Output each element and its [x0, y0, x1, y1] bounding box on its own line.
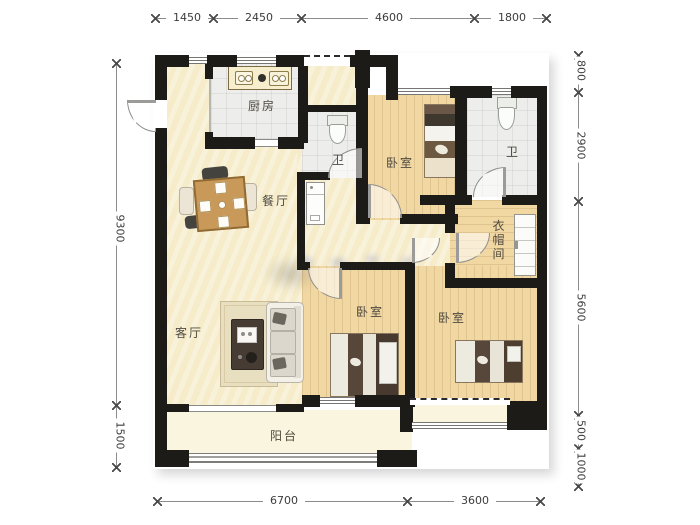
- wall: [445, 278, 547, 288]
- room-label-cloakroom: 衣帽间: [491, 219, 506, 261]
- kitchen-glass-partition: [209, 79, 211, 132]
- window: [492, 88, 511, 95]
- dim-tick: [112, 59, 121, 68]
- dim-label: 2450: [238, 11, 280, 24]
- refrigerator: [306, 182, 325, 225]
- dim-tick: [151, 14, 160, 23]
- wall: [455, 86, 467, 198]
- room-label-living: 客厅: [170, 324, 208, 341]
- dining-chair: [179, 187, 194, 215]
- dim-tick: [574, 197, 583, 206]
- sliding-door: [189, 405, 276, 412]
- wall: [377, 450, 417, 467]
- dim-tick: [209, 14, 218, 23]
- wall: [205, 63, 213, 79]
- dashed-opening: [410, 398, 510, 405]
- wardrobe: [514, 214, 536, 276]
- wall: [405, 262, 415, 407]
- wall: [386, 55, 398, 100]
- sliding-door: [255, 139, 278, 147]
- dim-label: 800: [575, 57, 588, 85]
- burner-icon: [258, 74, 266, 82]
- dim-tick: [403, 497, 412, 506]
- kitchen-counter: [228, 66, 292, 90]
- toilet-icon: [497, 97, 515, 129]
- room-label-bedroom-right: 卧室: [434, 309, 470, 326]
- bed: [424, 104, 459, 178]
- wall: [297, 172, 305, 270]
- stove-icon: [269, 71, 289, 86]
- dim-tick: [297, 14, 306, 23]
- room-label-bath-right: 卫: [504, 143, 520, 160]
- dim-label: 500: [575, 417, 588, 445]
- window: [320, 397, 355, 404]
- wall: [155, 55, 189, 67]
- dim-tick: [153, 497, 162, 506]
- dim-tick: [112, 401, 121, 410]
- wall: [298, 63, 308, 143]
- dim-label: 4600: [368, 11, 410, 24]
- dim-label: 6700: [263, 494, 305, 507]
- wall: [155, 450, 189, 467]
- dining-table: [193, 176, 249, 232]
- toilet-icon: [327, 115, 346, 143]
- wall: [167, 404, 189, 412]
- wall: [155, 128, 167, 467]
- dim-label: 9300: [114, 212, 127, 246]
- wall: [298, 105, 360, 112]
- entry-door-arc: [127, 100, 156, 132]
- room-label-bedroom-center: 卧室: [352, 303, 388, 320]
- wall: [355, 50, 370, 88]
- wall: [420, 195, 472, 205]
- dim-label: 5600: [575, 291, 588, 325]
- bay-window: [412, 422, 507, 429]
- dim-label: 1500: [114, 419, 127, 453]
- wall: [502, 195, 547, 205]
- sofa: [266, 302, 304, 383]
- sink-icon: [235, 71, 253, 85]
- dim-label: 1800: [491, 11, 533, 24]
- room-label-bath-mid: 卫: [330, 151, 346, 168]
- dim-tick: [470, 14, 479, 23]
- dim-tick: [536, 497, 545, 506]
- dim-label: 3600: [454, 494, 496, 507]
- room-label-bedroom-top: 卧室: [382, 154, 418, 171]
- bed: [330, 333, 399, 397]
- window: [237, 57, 276, 64]
- dim-label: 1450: [166, 11, 208, 24]
- room-label-dining: 餐厅: [256, 192, 296, 209]
- floor-plan: 厨房 餐厅 卫 卧室 卫 衣帽间 客厅 卧室 卧室 阳台 1450 2450 4…: [0, 0, 700, 525]
- dim-label: 2900: [575, 129, 588, 163]
- balcony-window: [189, 453, 377, 463]
- window: [398, 88, 450, 95]
- dashed-opening: [304, 55, 350, 66]
- dim-tick: [574, 88, 583, 97]
- bed: [455, 340, 523, 383]
- wall: [302, 395, 320, 407]
- dim-tick: [542, 14, 551, 23]
- wall: [340, 262, 412, 270]
- dim-label: 1000: [575, 450, 588, 484]
- wall: [205, 137, 255, 149]
- window: [189, 57, 207, 64]
- coffee-table: [231, 319, 264, 370]
- wall: [507, 401, 547, 430]
- dim-tick: [112, 463, 121, 472]
- wall: [355, 395, 410, 407]
- room-label-balcony: 阳台: [264, 427, 304, 444]
- wall: [537, 86, 547, 406]
- wall: [445, 205, 455, 233]
- room-label-kitchen: 厨房: [242, 97, 282, 114]
- wall: [276, 404, 304, 412]
